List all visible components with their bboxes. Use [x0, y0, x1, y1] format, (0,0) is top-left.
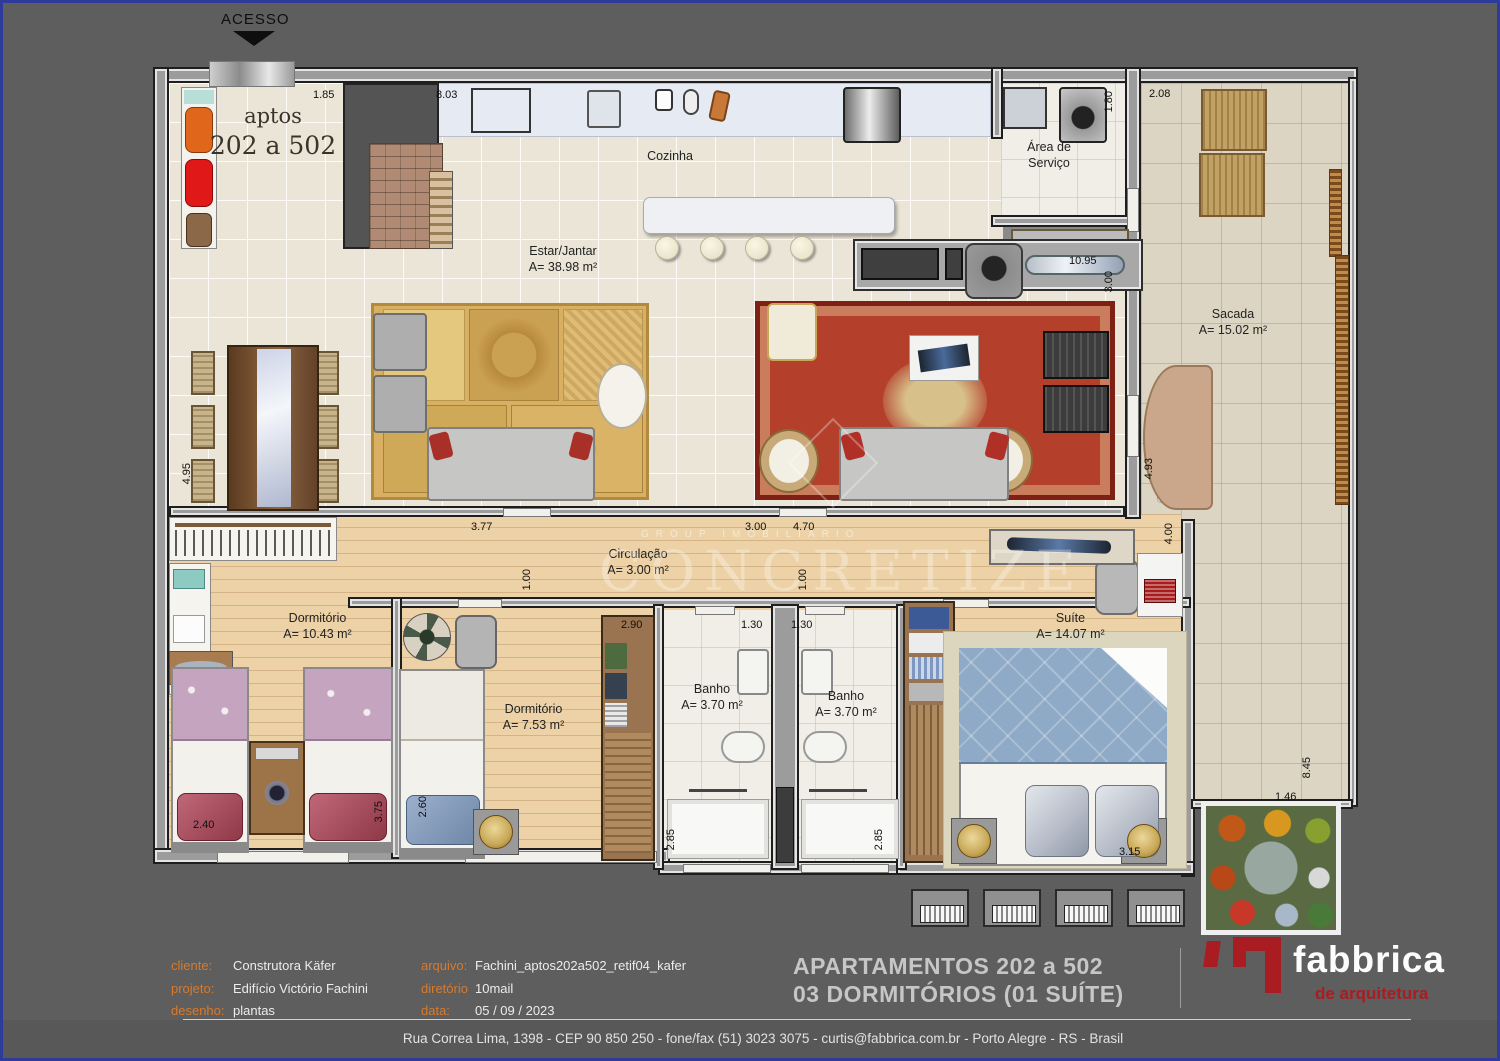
closet-item [605, 673, 627, 699]
desenho-value: plantas [233, 1003, 275, 1018]
desk-chair-icon [1095, 559, 1139, 615]
sofa-right [839, 427, 1009, 501]
dim-sacada-top: 2.08 [1149, 88, 1170, 100]
dim-suite-h: 3.15 [1119, 846, 1140, 858]
bed-frame [305, 842, 391, 851]
rug-patch [469, 309, 559, 401]
projeto-label: projeto: [171, 981, 214, 996]
laptop-icon [1144, 579, 1176, 603]
chair-icon [455, 615, 497, 669]
sofa-left [427, 427, 595, 501]
dim-circ-mid: 3.00 [745, 521, 766, 533]
wall-service-bottom [991, 215, 1137, 227]
dim-closet2: 2.90 [621, 619, 642, 631]
louver-panel [1335, 255, 1349, 505]
dim-kitchen: 8.03 [436, 89, 457, 101]
shelf-item [173, 615, 205, 643]
projeto-value: Edifício Victório Fachini [233, 981, 368, 996]
bedside-lamp-icon [957, 824, 991, 858]
desk-lamp-icon [265, 781, 289, 805]
shower-box [667, 799, 769, 859]
wicker-cushion [769, 439, 809, 483]
washer-icon [1059, 87, 1107, 143]
logo-mark-icon [1265, 937, 1281, 993]
label-servico: Área de Serviço [1003, 139, 1095, 172]
data-label: data: [421, 1003, 450, 1018]
label-estar: Estar/Jantar A= 38.98 m² [488, 243, 638, 276]
floorplan-canvas: ACESSO [0, 0, 1500, 1061]
ceiling-fan-icon [403, 613, 451, 661]
dim-living-d: 3.00 [1103, 271, 1115, 292]
label-sacada: Sacada A= 15.02 m² [1153, 306, 1313, 339]
curved-sofa [1143, 365, 1213, 510]
shelf-item [173, 569, 205, 589]
stool-icon [700, 236, 724, 260]
stairs-icon [429, 171, 453, 249]
keyboard-icon [255, 747, 299, 760]
projector-icon [965, 243, 1023, 299]
towel-bar-icon [689, 789, 747, 792]
unit-line1: aptos [203, 103, 343, 130]
desenho-label: desenho: [171, 1003, 225, 1018]
dim-sacada-right-h: 8.45 [1301, 757, 1313, 778]
dim-dorm1-h: 3.75 [373, 801, 385, 822]
dim-garden-w: 1.46 [1275, 791, 1296, 803]
wall-top [153, 67, 1358, 83]
titleblock-divider [1180, 948, 1181, 1008]
logo-name: fabbrica [1293, 939, 1445, 981]
bed-frame [173, 842, 247, 851]
label-cozinha: Cozinha [620, 148, 720, 164]
dim-banho2-h: 2.85 [873, 829, 885, 850]
dim-dorm2-h: 2.60 [417, 796, 429, 817]
logo-mark-icon [1203, 941, 1221, 967]
dim-suite-w: 4.00 [1163, 523, 1175, 544]
toilet-icon [721, 731, 765, 763]
accent-chair-icon [767, 303, 817, 361]
closet-rail [175, 523, 331, 527]
access-arrow-icon [233, 31, 275, 46]
label-suite: Suíte A= 14.07 m² [1008, 610, 1133, 643]
armchair-icon [373, 313, 427, 371]
cliente-value: Construtora Käfer [233, 958, 336, 973]
dining-chair-icon [191, 459, 215, 503]
dining-chair-icon [191, 351, 215, 395]
access-label: ACESSO [221, 11, 290, 28]
bath1-door [695, 606, 735, 615]
towel-bar-icon [809, 789, 867, 792]
entry-shelf-item [186, 213, 212, 247]
dim-door2: 1.00 [797, 569, 809, 590]
louver-panel [1329, 169, 1342, 257]
unit-line2: 202 a 502 [203, 130, 343, 163]
dining-table-runner [257, 349, 291, 507]
bed-pillow [177, 793, 243, 841]
side-table-icon [597, 363, 647, 429]
dark-armchair-icon [1043, 385, 1109, 433]
appliance-icon [655, 89, 673, 111]
dim-banho1-w: 1.30 [741, 619, 762, 631]
label-circulacao: Circulação A= 3.00 m² [573, 546, 703, 579]
hangers-icon [175, 530, 331, 556]
dim-sacada-left-h: 4.93 [1143, 458, 1155, 479]
dim-banho1-h: 2.85 [665, 829, 677, 850]
kettle-icon [683, 89, 699, 115]
laundry-sink-icon [1003, 87, 1047, 129]
hall-door-1 [503, 508, 551, 517]
bed-single [303, 667, 393, 853]
stove-icon [471, 88, 531, 133]
cliente-label: cliente: [171, 958, 212, 973]
bed-blanket [173, 669, 247, 741]
tv-rack-box [945, 248, 963, 280]
arquivo-value: Fachini_aptos202a502_retif04_kafer [475, 958, 686, 973]
footer-address: Rua Correa Lima, 1398 - CEP 90 850 250 -… [143, 1031, 1383, 1046]
label-dorm2: Dormitório A= 7.53 m² [471, 701, 596, 734]
entry-door [209, 61, 295, 87]
entry-shelf-item [185, 159, 213, 207]
dim-banho2-w: 1.30 [791, 619, 812, 631]
dim-service: 1.80 [1103, 91, 1115, 112]
wall-service-left [991, 67, 1003, 139]
label-banho1: Banho A= 3.70 m² [671, 681, 753, 714]
ac-unit-icon [1127, 889, 1185, 927]
dining-chair-icon [191, 405, 215, 449]
wall-balcony-right [1348, 77, 1358, 807]
fridge-icon [843, 87, 901, 143]
garden-planter [1201, 801, 1341, 935]
wall-left [153, 67, 169, 864]
balcony-door [1127, 395, 1139, 457]
armchair-icon [373, 375, 427, 433]
toilet-icon [803, 731, 847, 763]
label-banho2: Banho A= 3.70 m² [803, 688, 889, 721]
dim-door1: 1.00 [521, 569, 533, 590]
tv-rack-box [861, 248, 939, 280]
stool-icon [655, 236, 679, 260]
sheet-title-line2: 03 DORMITÓRIOS (01 SUÍTE) [793, 981, 1124, 1008]
dim-dorm1-w: 2.40 [193, 819, 214, 831]
bed-pillow [1025, 785, 1089, 857]
stool-icon [745, 236, 769, 260]
dorm2-door [458, 599, 502, 608]
dim-entry: 1.85 [313, 89, 334, 101]
bath2-door [805, 606, 845, 615]
stool-icon [790, 236, 814, 260]
entry-shelf-item [184, 90, 214, 104]
kitchen-island [643, 197, 895, 234]
lounge-chair-icon [1201, 89, 1267, 151]
label-dorm1: Dormitório A= 10.43 m² [255, 610, 380, 643]
diretorio-label: diretório [421, 981, 468, 996]
ac-unit-icon [983, 889, 1041, 927]
window-bath1 [683, 864, 771, 873]
unit-label: aptos 202 a 502 [203, 103, 343, 163]
lounge-chair-icon [1199, 153, 1265, 217]
logo-mark-icon [1233, 937, 1246, 967]
ac-unit-icon [911, 889, 969, 927]
closet-shelves [605, 733, 651, 853]
closet-item [605, 703, 627, 727]
dim-dining-h: 4.95 [181, 463, 193, 484]
data-value: 05 / 09 / 2023 [475, 1003, 555, 1018]
shaft [776, 787, 794, 863]
balcony-window [1127, 188, 1139, 232]
closet-item [909, 607, 949, 629]
dim-circ-right: 4.70 [793, 521, 814, 533]
window-bath2 [801, 864, 889, 873]
kitchen-sink-icon [587, 90, 621, 128]
arquivo-label: arquivo: [421, 958, 467, 973]
dim-circ-left: 3.77 [471, 521, 492, 533]
logo-subtitle: de arquitetura [1315, 984, 1428, 1004]
closet-item [605, 643, 627, 669]
dark-armchair-icon [1043, 331, 1109, 379]
sheet-title-line1: APARTAMENTOS 202 a 502 [793, 953, 1103, 980]
bed-frame [401, 848, 483, 857]
dim-living-w: 10.95 [1069, 255, 1097, 267]
bed-blanket [305, 669, 391, 741]
floor-lamp-icon [479, 815, 513, 849]
hall-door-2 [779, 508, 827, 517]
diretorio-value: 10mail [475, 981, 513, 996]
ac-unit-icon [1055, 889, 1113, 927]
